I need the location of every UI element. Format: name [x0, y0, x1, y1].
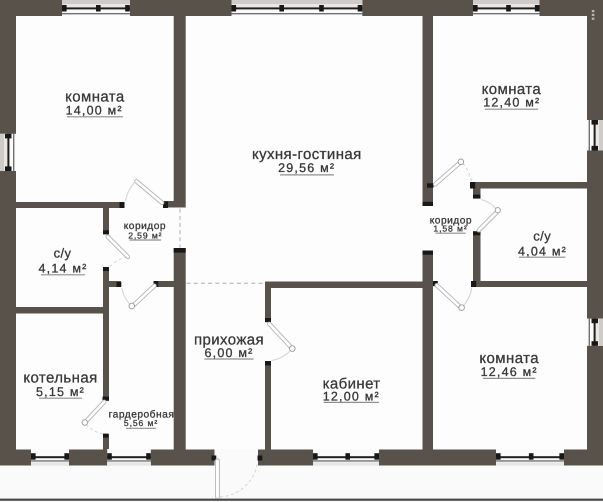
- svg-text:14,00 м²: 14,00 м²: [66, 103, 123, 117]
- svg-text:12,46 м²: 12,46 м²: [481, 365, 538, 379]
- svg-text:с/у: с/у: [533, 229, 551, 244]
- svg-text:12,40 м²: 12,40 м²: [483, 96, 540, 110]
- svg-text:6,00 м²: 6,00 м²: [205, 346, 254, 360]
- svg-text:12,00 м²: 12,00 м²: [323, 390, 380, 404]
- svg-text:29,56 м²: 29,56 м²: [278, 161, 335, 175]
- svg-text:с/у: с/у: [54, 246, 72, 261]
- svg-text:4,04 м²: 4,04 м²: [518, 244, 567, 258]
- svg-text:5,56 м²: 5,56 м²: [124, 418, 158, 428]
- svg-text:1,58 м²: 1,58 м²: [433, 223, 467, 233]
- svg-text:4,14 м²: 4,14 м²: [39, 262, 88, 276]
- svg-text:2,59 м²: 2,59 м²: [128, 230, 162, 240]
- svg-text:5,15 м²: 5,15 м²: [36, 385, 85, 399]
